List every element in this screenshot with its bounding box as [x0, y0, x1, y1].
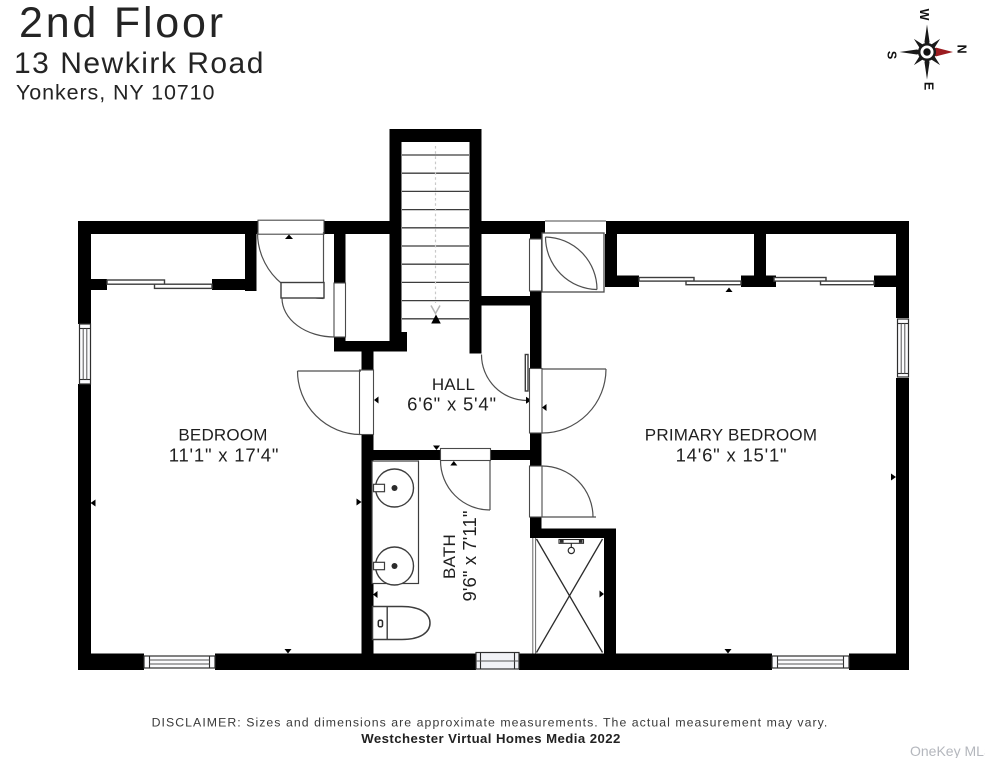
svg-text:W: W	[917, 9, 931, 21]
svg-text:OneKey MLS: OneKey MLS	[910, 743, 985, 758]
svg-text:PRIMARY BEDROOM: PRIMARY BEDROOM	[645, 426, 817, 445]
svg-text:Yonkers, NY 10710: Yonkers, NY 10710	[16, 81, 215, 105]
svg-text:E: E	[922, 82, 936, 90]
svg-text:S: S	[885, 51, 899, 59]
svg-text:BEDROOM: BEDROOM	[178, 426, 267, 445]
svg-text:HALL: HALL	[432, 375, 475, 394]
svg-text:6'6" x 5'4": 6'6" x 5'4"	[407, 394, 497, 415]
svg-text:BATH: BATH	[440, 534, 459, 579]
svg-text:Westchester Virtual Homes Medi: Westchester Virtual Homes Media 2022	[361, 731, 620, 746]
svg-text:DISCLAIMER: Sizes and dimensio: DISCLAIMER: Sizes and dimensions are app…	[152, 716, 829, 730]
svg-text:13 Newkirk Road: 13 Newkirk Road	[14, 47, 265, 80]
svg-text:2nd Floor: 2nd Floor	[19, 0, 226, 47]
svg-text:11'1" x 17'4": 11'1" x 17'4"	[169, 445, 280, 466]
svg-text:N: N	[955, 44, 969, 53]
svg-text:9'6" x 7'11": 9'6" x 7'11"	[459, 511, 480, 602]
svg-text:14'6" x 15'1": 14'6" x 15'1"	[676, 444, 788, 465]
